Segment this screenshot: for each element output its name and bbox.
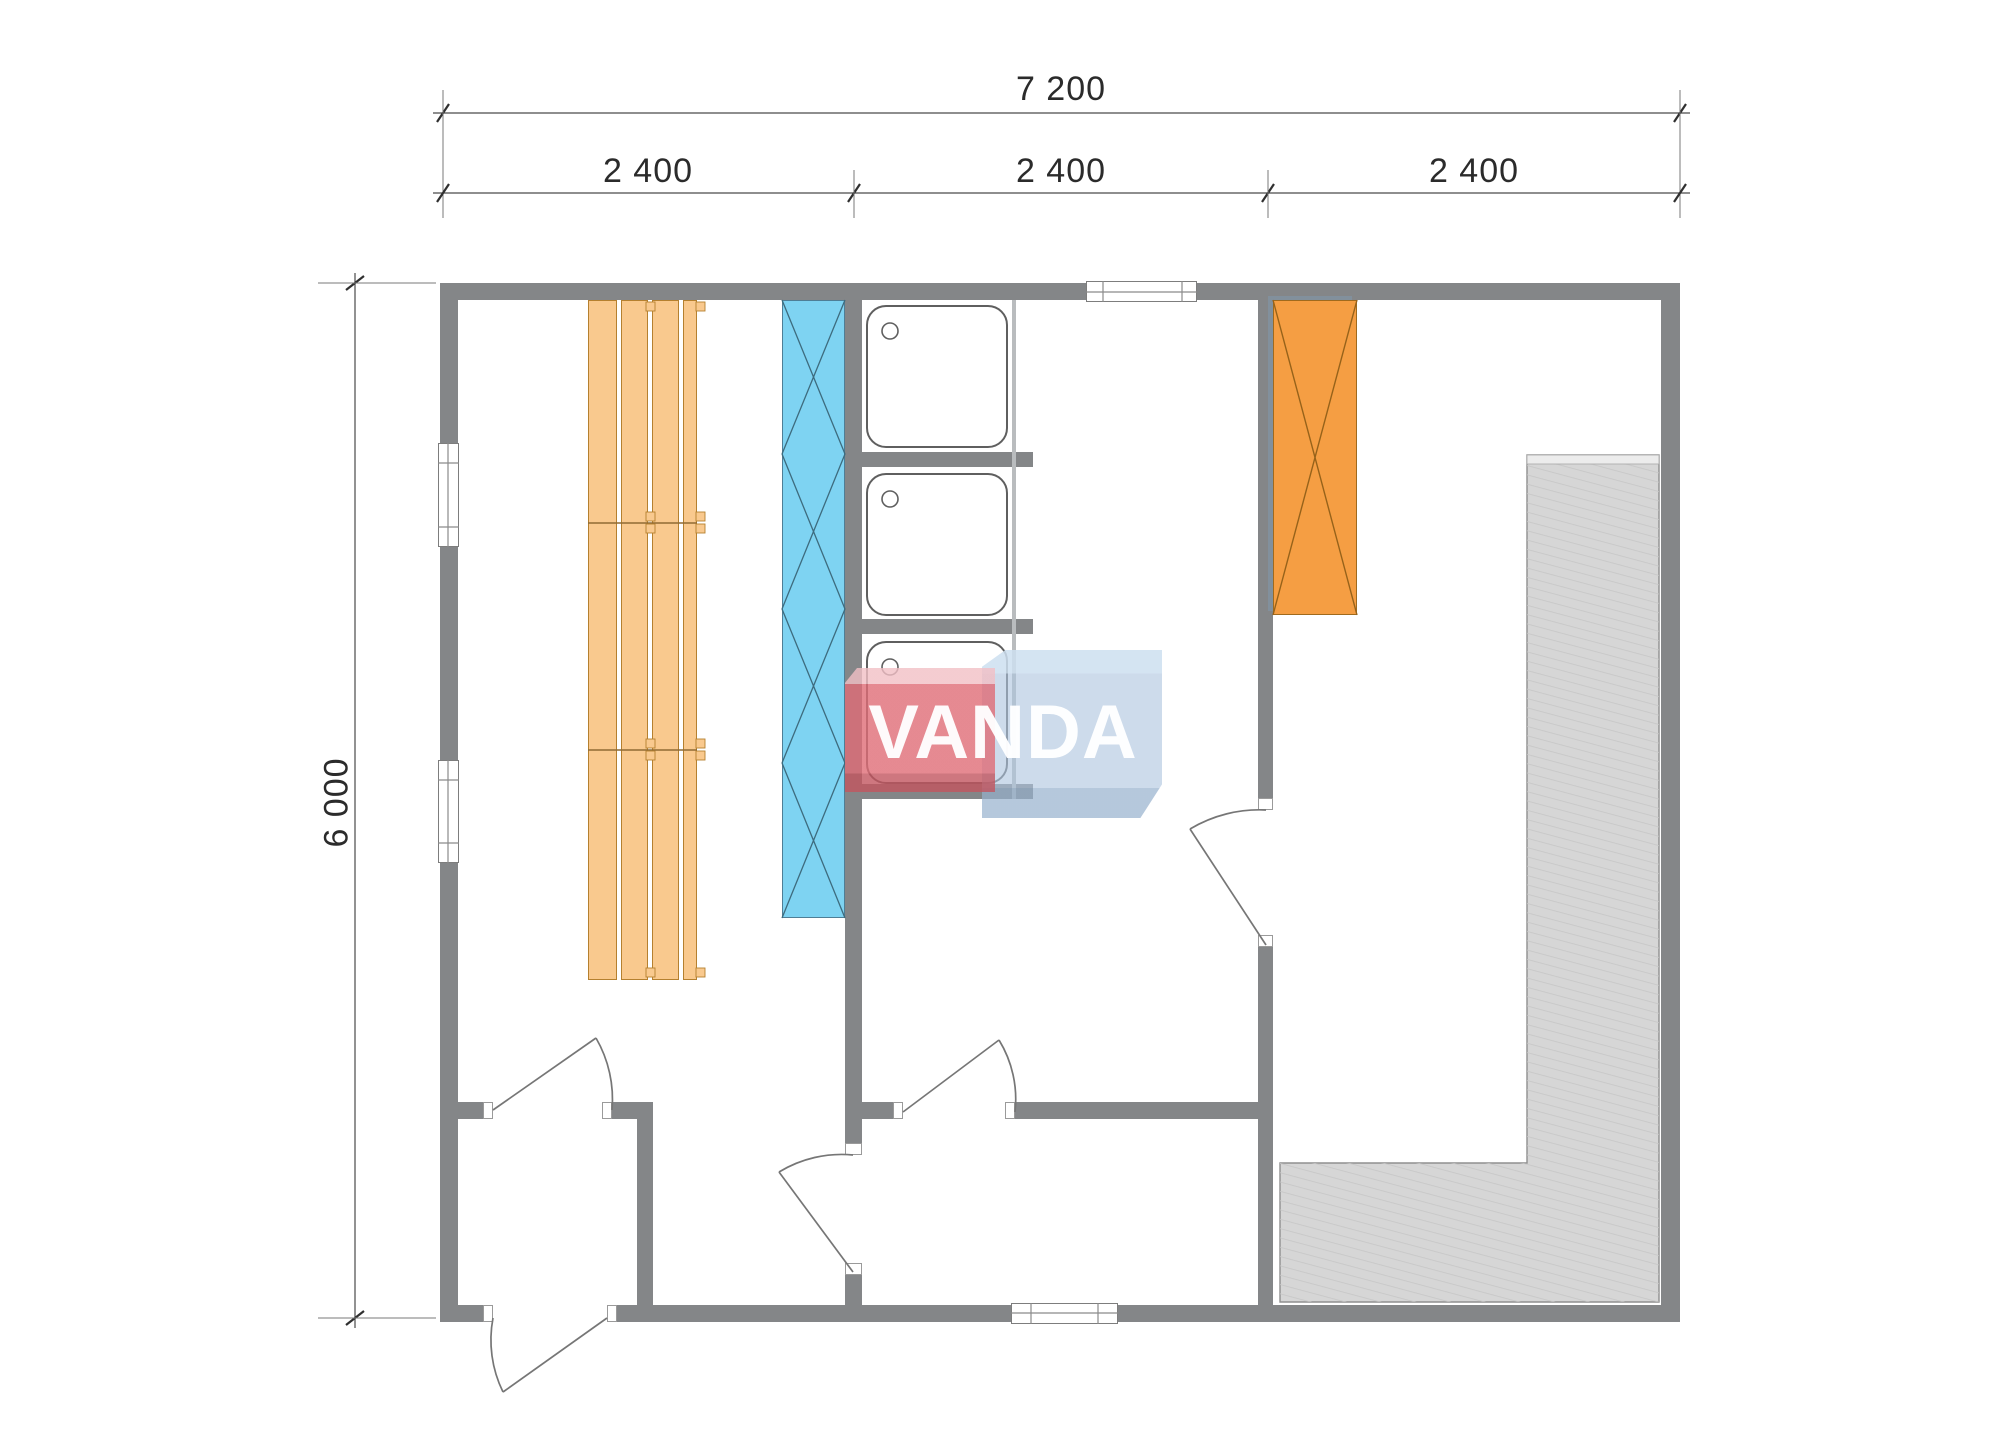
wardrobe-x-pattern (1273, 300, 1357, 615)
corner-deck-bench (1280, 455, 1659, 1302)
door-lounge (1190, 810, 1266, 945)
door-changing-shower (903, 1040, 1016, 1112)
brand-watermark: VANDA (838, 690, 1168, 776)
floor-plan-canvas: 7 200 2 400 2 400 2 400 6 000 (0, 0, 2000, 1450)
shower-drain (882, 323, 898, 339)
bench-seams (588, 302, 705, 977)
door-sauna-changing (779, 1154, 853, 1272)
heater-x-pattern (782, 300, 845, 918)
door-vestibule-sauna (493, 1038, 612, 1110)
shower-drain (882, 491, 898, 507)
door-entrance (491, 1318, 607, 1392)
